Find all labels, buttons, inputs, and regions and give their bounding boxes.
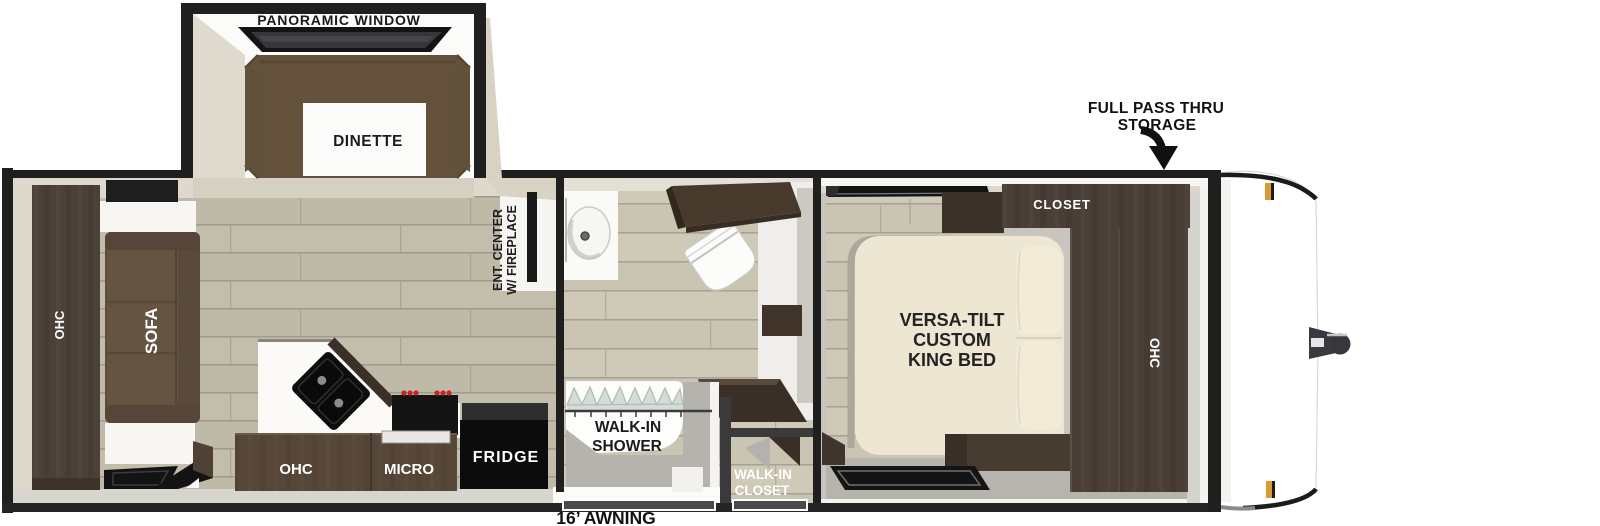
svg-text:FRIDGE: FRIDGE (473, 449, 539, 466)
svg-text:SHOWER: SHOWER (592, 438, 662, 455)
svg-text:FULL PASS THRU: FULL PASS THRU (1088, 100, 1224, 117)
svg-text:PANORAMIC WINDOW: PANORAMIC WINDOW (257, 12, 420, 28)
svg-text:OHC: OHC (1147, 338, 1162, 368)
svg-text:CLOSET: CLOSET (735, 483, 791, 498)
svg-text:OHC: OHC (52, 310, 67, 340)
svg-text:DINETTE: DINETTE (333, 133, 403, 150)
svg-text:CUSTOM: CUSTOM (913, 330, 991, 350)
svg-text:VERSA-TILT: VERSA-TILT (900, 310, 1005, 330)
svg-text:STORAGE: STORAGE (1118, 117, 1196, 134)
svg-text:KING BED: KING BED (908, 350, 996, 370)
svg-text:ENT. CENTER: ENT. CENTER (491, 209, 505, 291)
svg-text:W/ FIREPLACE: W/ FIREPLACE (505, 205, 519, 295)
svg-text:WALK-IN: WALK-IN (595, 419, 661, 436)
svg-text:CLOSET: CLOSET (1033, 197, 1091, 212)
svg-text:WALK-IN: WALK-IN (734, 467, 792, 482)
svg-text:OHC: OHC (279, 461, 313, 478)
svg-text:MICRO: MICRO (384, 461, 434, 478)
svg-text:SOFA: SOFA (142, 308, 161, 354)
